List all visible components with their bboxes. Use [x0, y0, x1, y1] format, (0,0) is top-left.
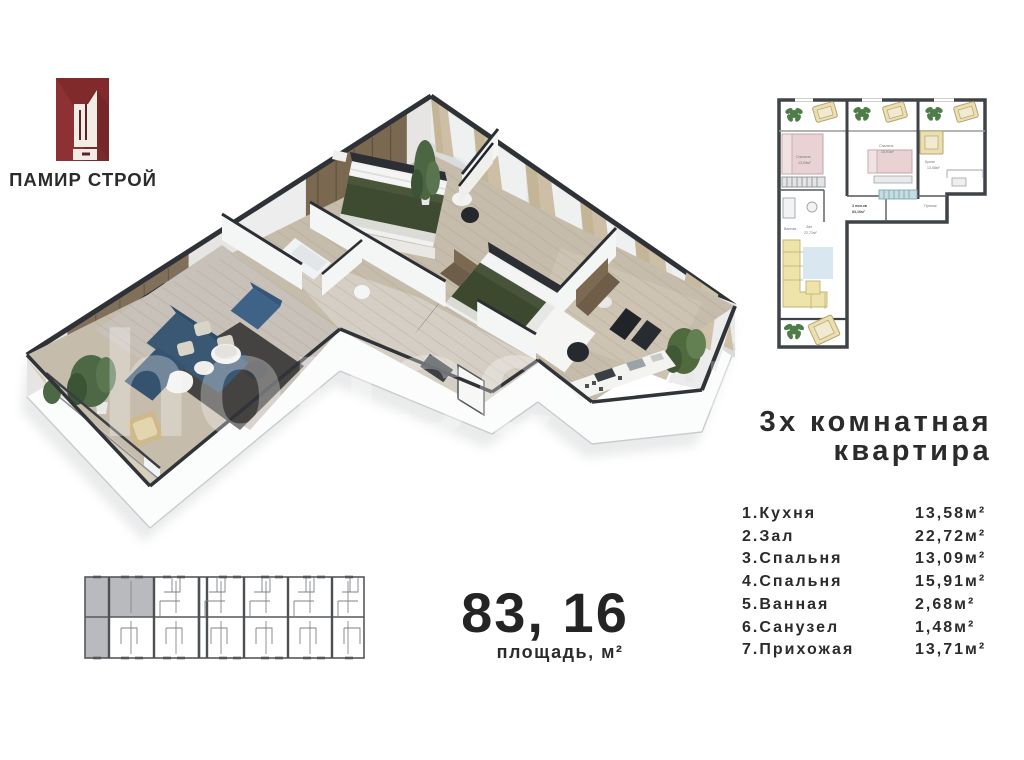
svg-text:квартира: квартира	[834, 435, 993, 467]
svg-text:7.Прихожая: 7.Прихожая	[742, 641, 854, 658]
svg-text:Кухня: Кухня	[925, 160, 935, 164]
svg-text:Спальня: Спальня	[796, 155, 810, 159]
svg-text:5.Ванная: 5.Ванная	[742, 596, 829, 613]
svg-text:house: house	[99, 300, 561, 468]
svg-text:площадь, м²: площадь, м²	[497, 642, 624, 662]
svg-text:13,58м²: 13,58м²	[927, 166, 940, 170]
svg-text:13,71м²: 13,71м²	[915, 641, 986, 658]
svg-text:3.Спальня: 3.Спальня	[742, 550, 842, 567]
svg-text:22,72м²: 22,72м²	[915, 528, 986, 545]
svg-text:Прихож: Прихож	[924, 204, 937, 208]
svg-text:Зал: Зал	[806, 225, 812, 229]
svg-text:3 пом.кв: 3 пом.кв	[852, 204, 868, 208]
svg-text:Ванная: Ванная	[784, 227, 796, 231]
svg-text:2,68м²: 2,68м²	[915, 596, 975, 613]
svg-text:83,16м²: 83,16м²	[852, 210, 866, 214]
svg-text:15,91м²: 15,91м²	[915, 573, 986, 590]
svg-text:ПАМИР СТРОЙ: ПАМИР СТРОЙ	[9, 169, 157, 190]
svg-text:3х комнатная: 3х комнатная	[760, 406, 992, 438]
svg-text:13,09м²: 13,09м²	[798, 161, 811, 165]
svg-text:15,91м²: 15,91м²	[881, 150, 894, 154]
svg-text:13,58м²: 13,58м²	[915, 505, 986, 522]
svg-text:1.Кухня: 1.Кухня	[742, 505, 816, 522]
svg-text:2.Зал: 2.Зал	[742, 528, 794, 545]
svg-text:1,48м²: 1,48м²	[915, 619, 975, 636]
svg-text:22,72м²: 22,72м²	[804, 231, 817, 235]
svg-text:13,09м²: 13,09м²	[915, 550, 986, 567]
svg-text:83, 16: 83, 16	[461, 581, 629, 644]
svg-text:4.Спальня: 4.Спальня	[742, 573, 842, 590]
svg-text:Спальня: Спальня	[879, 144, 893, 148]
svg-text:6.Санузел: 6.Санузел	[742, 619, 839, 636]
